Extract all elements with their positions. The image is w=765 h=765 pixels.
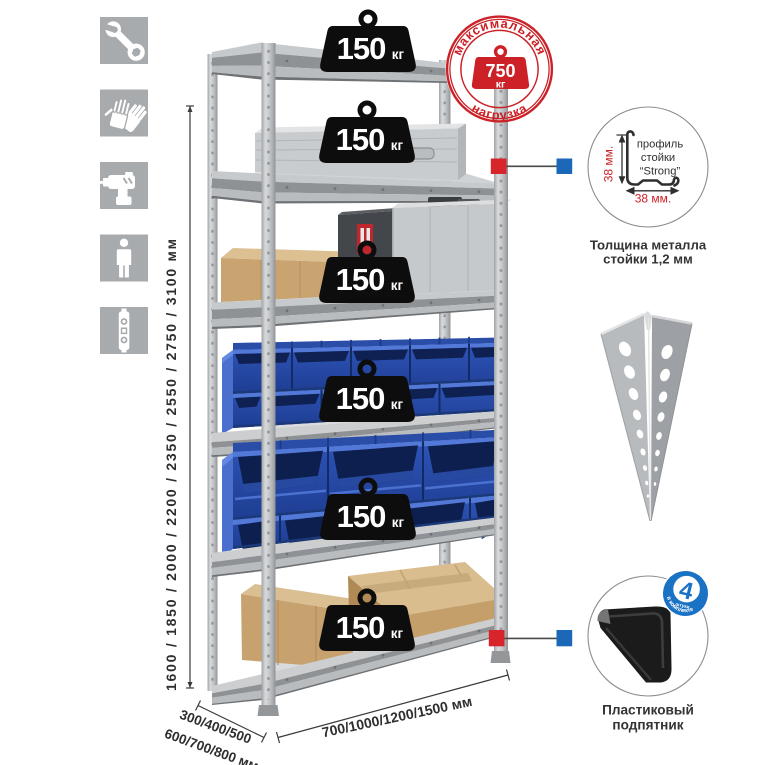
svg-text:Пластиковый: Пластиковый xyxy=(602,703,694,718)
svg-text:подпятник: подпятник xyxy=(612,718,683,733)
svg-text:стойки: стойки xyxy=(641,152,675,164)
svg-text:“Strong”: “Strong” xyxy=(640,166,681,178)
svg-text:кг: кг xyxy=(496,79,506,91)
svg-text:38 мм.: 38 мм. xyxy=(635,192,672,206)
svg-text:стойки 1,2 мм: стойки 1,2 мм xyxy=(603,252,693,267)
svg-text:Толщина металла: Толщина металла xyxy=(590,238,707,253)
svg-text:38 мм.: 38 мм. xyxy=(602,146,616,183)
svg-text:профиль: профиль xyxy=(637,139,683,151)
